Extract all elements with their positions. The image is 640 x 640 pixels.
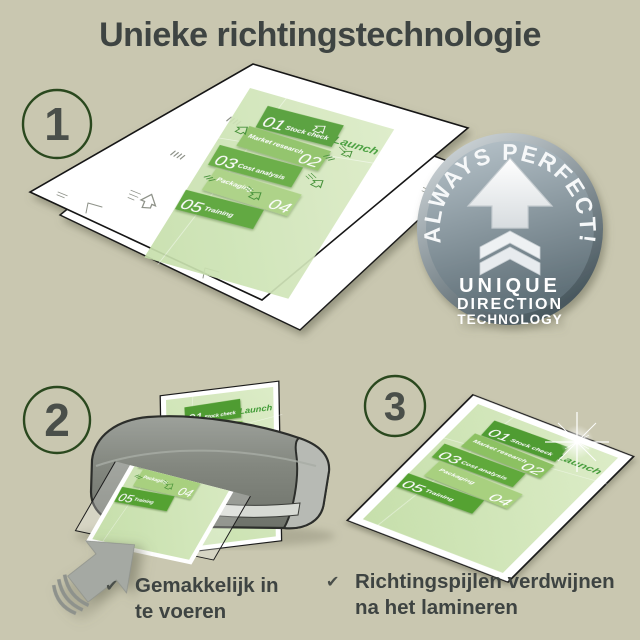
- check-icon: ✔: [105, 578, 118, 595]
- caption1-line2: te voeren: [135, 600, 226, 623]
- caption2-line1: Richtingspijlen verdwijnen: [355, 570, 615, 593]
- step2-number: 2: [44, 394, 70, 446]
- step1-number: 1: [44, 98, 70, 150]
- badge-line-technology: TECHNOLOGY: [457, 312, 562, 327]
- page-title: Unieke richtingstechnologie: [99, 16, 541, 54]
- check-icon: ✔: [326, 574, 339, 591]
- caption1-line1: Gemakkelijk in: [135, 574, 279, 597]
- badge-line-unique: UNIQUE: [459, 275, 561, 297]
- step3-number: 3: [384, 385, 406, 429]
- sparkle-core: [574, 439, 579, 444]
- badge-line-direction: DIRECTION: [457, 296, 563, 313]
- caption2-line2: na het lamineren: [355, 596, 518, 619]
- infographic: Launch 01 Stock check Market research 02…: [0, 0, 640, 640]
